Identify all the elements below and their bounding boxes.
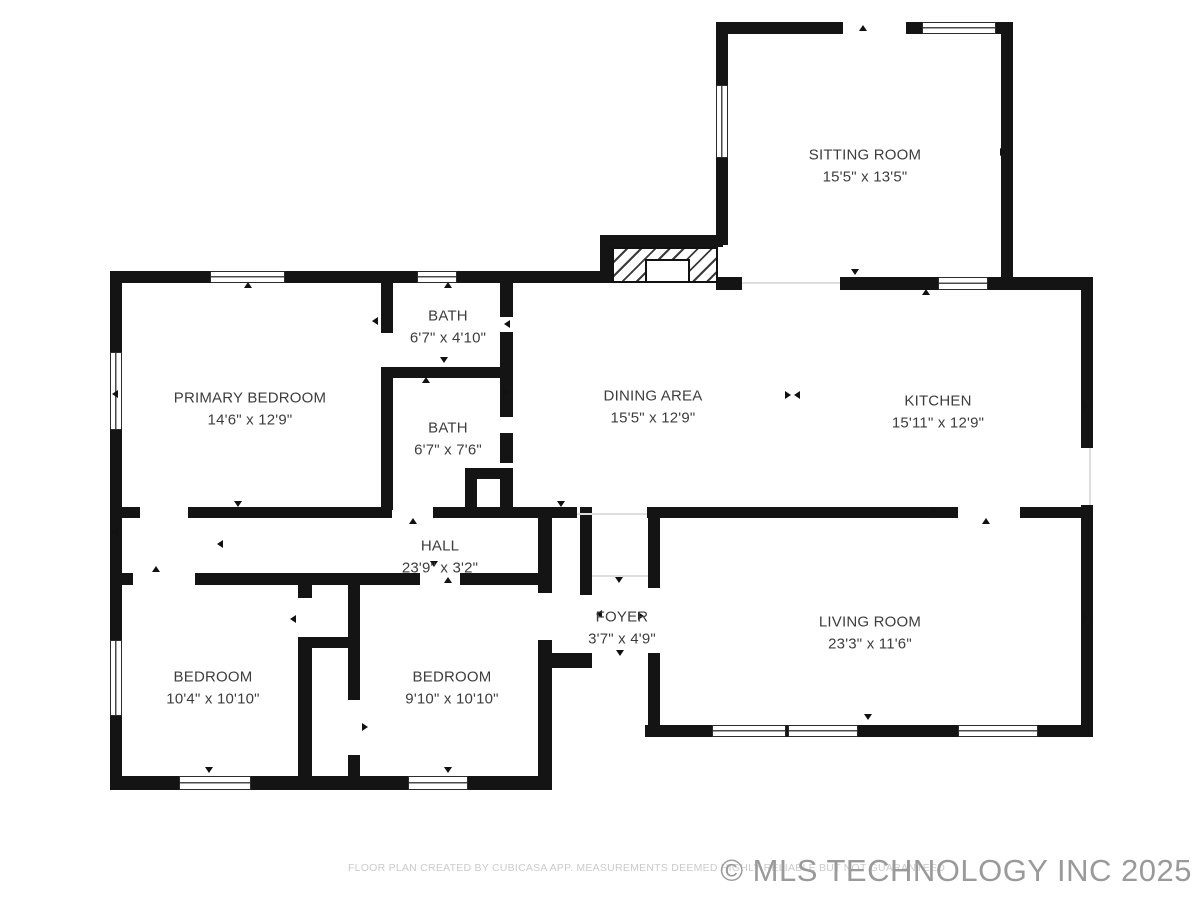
door-arrow-icon: [205, 767, 213, 773]
wall-segment: [381, 371, 393, 510]
room-name: HALL: [402, 535, 478, 557]
wall-segment: [110, 776, 552, 790]
wall-segment: [348, 648, 360, 700]
wall-segment: [1020, 507, 1093, 518]
room-dims: 14'6" x 12'9": [174, 409, 326, 431]
room-dims: 6'7" x 4'10": [410, 327, 486, 349]
window: [110, 640, 122, 716]
room-name: BEDROOM: [166, 666, 259, 688]
room-label-primary-bedroom: PRIMARY BEDROOM 14'6" x 12'9": [174, 387, 326, 431]
door-arrow-icon: [152, 566, 160, 572]
wall-segment: [538, 640, 552, 790]
door-arrow-icon: [422, 377, 430, 383]
fireplace-firebox: [645, 259, 690, 283]
room-name: BATH: [414, 417, 482, 439]
door-arrow-icon: [444, 282, 452, 288]
door-arrow-icon: [217, 540, 223, 548]
wall-segment: [988, 277, 1013, 290]
wall-segment: [298, 637, 360, 648]
window: [712, 725, 786, 737]
wall-segment: [716, 22, 843, 34]
wall-segment: [600, 235, 723, 247]
room-label-living-room: LIVING ROOM 23'3" x 11'6": [819, 611, 921, 655]
wall-opening: [577, 513, 647, 515]
wall-segment: [716, 277, 742, 290]
room-name: BEDROOM: [405, 666, 498, 688]
door-arrow-icon: [1000, 148, 1006, 156]
window: [938, 277, 988, 290]
door-arrow-icon: [409, 518, 417, 524]
room-dims: 9'10" x 10'10": [405, 688, 498, 710]
window: [922, 22, 996, 34]
wall-segment: [195, 573, 360, 585]
wall-segment: [906, 22, 922, 34]
wall-segment: [500, 433, 513, 463]
room-name: FOYER: [588, 606, 656, 628]
room-name: LIVING ROOM: [819, 611, 921, 633]
room-label-bedroom-middle: BEDROOM 9'10" x 10'10": [405, 666, 498, 710]
wall-segment: [538, 507, 552, 593]
wall-segment: [500, 477, 513, 513]
door-arrow-icon: [785, 391, 791, 399]
room-label-bath-upper: BATH 6'7" x 4'10": [410, 305, 486, 349]
wall-segment: [348, 585, 360, 637]
room-dims: 15'11" x 12'9": [892, 412, 984, 434]
door-arrow-icon: [982, 518, 990, 524]
door-arrow-icon: [372, 317, 378, 325]
door-arrow-icon: [930, 508, 938, 514]
room-name: BATH: [410, 305, 486, 327]
room-name: PRIMARY BEDROOM: [174, 387, 326, 409]
door-arrow-icon: [859, 25, 867, 31]
room-name: KITCHEN: [892, 390, 984, 412]
door-arrow-icon: [1083, 402, 1089, 410]
wall-segment: [110, 573, 133, 585]
room-dims: 6'7" x 7'6": [414, 439, 482, 461]
room-dims: 23'3" x 11'6": [819, 633, 921, 655]
wall-segment: [298, 585, 312, 598]
door-arrow-icon: [557, 501, 565, 507]
door-arrow-icon: [362, 723, 368, 731]
room-label-sitting-room: SITTING ROOM 15'5" x 13'5": [809, 144, 921, 188]
room-label-hall: HALL 23'9" x 3'2": [402, 535, 478, 579]
door-arrow-icon: [864, 714, 872, 720]
window: [408, 776, 468, 790]
room-label-kitchen: KITCHEN 15'11" x 12'9": [892, 390, 984, 434]
window: [716, 85, 728, 158]
door-arrow-icon: [112, 390, 118, 398]
room-dims: 23'9" x 3'2": [402, 557, 478, 579]
window: [788, 725, 858, 737]
copyright-watermark: © MLS TECHNOLOGY INC 2025: [720, 853, 1192, 889]
wall-segment: [552, 653, 592, 668]
room-dims: 3'7" x 4'9": [588, 628, 656, 650]
wall-segment: [580, 507, 592, 595]
wall-segment: [110, 507, 140, 518]
room-label-foyer: FOYER 3'7" x 4'9": [588, 606, 656, 650]
wall-segment: [648, 513, 660, 588]
wall-segment: [110, 271, 610, 283]
door-arrow-icon: [112, 528, 118, 536]
door-arrow-icon: [444, 767, 452, 773]
window: [958, 725, 1038, 737]
wall-segment: [648, 655, 660, 737]
door-arrow-icon: [503, 388, 509, 396]
door-arrow-icon: [504, 320, 510, 328]
room-label-dining-area: DINING AREA 15'5" x 12'9": [604, 385, 703, 429]
wall-segment: [381, 367, 513, 378]
floor-plan: SITTING ROOM 15'5" x 13'5" PRIMARY BEDRO…: [0, 0, 1200, 900]
wall-segment: [465, 468, 513, 479]
room-label-bedroom-left: BEDROOM 10'4" x 10'10": [166, 666, 259, 710]
room-name: DINING AREA: [604, 385, 703, 407]
door-arrow-icon: [440, 357, 448, 363]
wall-segment: [500, 283, 513, 317]
wall-opening: [1089, 448, 1091, 505]
door-arrow-icon: [615, 577, 623, 583]
room-dims: 15'5" x 12'9": [604, 407, 703, 429]
wall-segment: [647, 507, 958, 518]
room-name: SITTING ROOM: [809, 144, 921, 166]
door-arrow-icon: [244, 282, 252, 288]
door-arrow-icon: [851, 269, 859, 275]
wall-segment: [188, 507, 392, 518]
window: [179, 776, 251, 790]
door-arrow-icon: [922, 289, 930, 295]
wall-segment: [1081, 277, 1093, 448]
wall-opening: [742, 282, 840, 284]
room-label-bath-lower: BATH 6'7" x 7'6": [414, 417, 482, 461]
door-arrow-icon: [616, 650, 624, 656]
room-dims: 10'4" x 10'10": [166, 688, 259, 710]
door-arrow-icon: [234, 501, 242, 507]
wall-segment: [381, 283, 393, 333]
door-arrow-icon: [794, 391, 800, 399]
wall-segment: [298, 637, 312, 790]
wall-segment: [500, 332, 513, 417]
room-dims: 15'5" x 13'5": [809, 166, 921, 188]
door-arrow-icon: [290, 615, 296, 623]
door-arrow-icon: [1083, 614, 1089, 622]
wall-segment: [348, 755, 360, 790]
